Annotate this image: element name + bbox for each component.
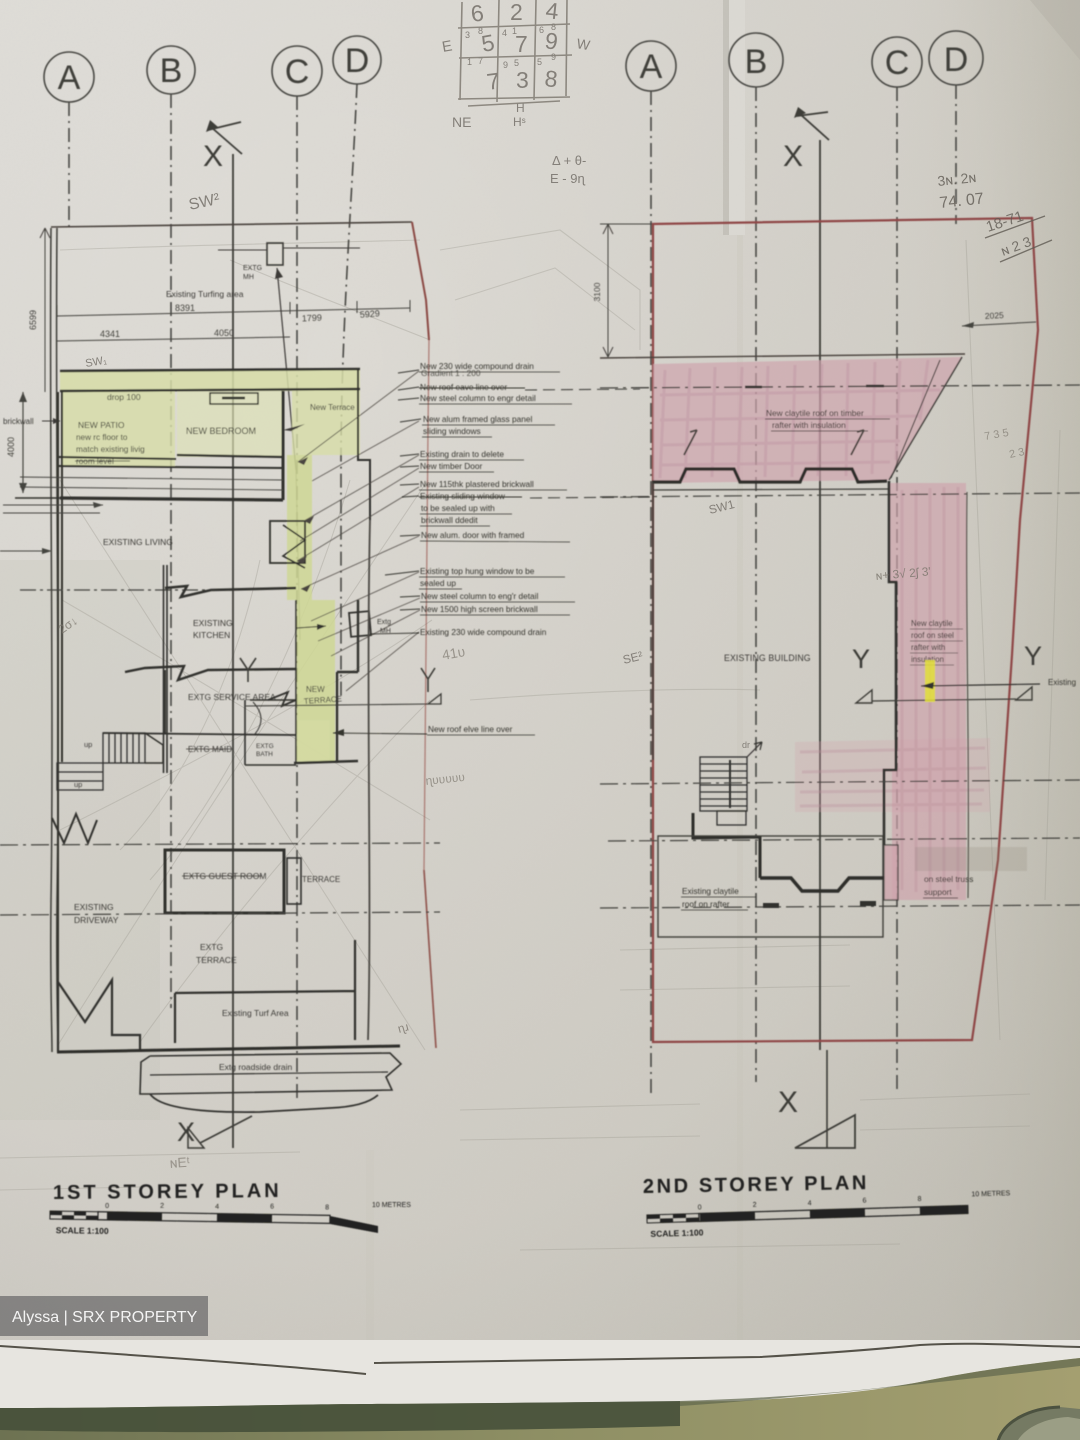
svg-text:New 115thk plastered brickwall: New 115thk plastered brickwall <box>420 479 534 489</box>
svg-text:TERRACE: TERRACE <box>302 875 340 884</box>
svg-text:sealed up: sealed up <box>420 578 456 588</box>
svg-text:Alyssa | SRX PROPERTY: Alyssa | SRX PROPERTY <box>12 1309 198 1326</box>
svg-text:D: D <box>345 42 370 80</box>
svg-text:6: 6 <box>270 1203 274 1210</box>
svg-text:4000: 4000 <box>6 437 16 457</box>
svg-text:4: 4 <box>808 1200 812 1207</box>
svg-text:NE: NE <box>452 114 471 130</box>
svg-text:up: up <box>74 780 82 789</box>
svg-text:drop 100: drop 100 <box>107 392 141 402</box>
svg-text:9: 9 <box>503 60 508 70</box>
svg-text:2ND STOREY PLAN: 2ND STOREY PLAN <box>643 1172 869 1198</box>
svg-text:Hˢ: Hˢ <box>513 115 526 129</box>
svg-text:1799: 1799 <box>302 312 323 323</box>
svg-text:C: C <box>285 53 310 91</box>
svg-text:2: 2 <box>510 0 523 25</box>
svg-text:Existing drain to delete: Existing drain to delete <box>420 449 504 459</box>
svg-text:X: X <box>177 1117 195 1147</box>
svg-text:Existing: Existing <box>1048 678 1076 687</box>
svg-text:7: 7 <box>478 56 483 66</box>
svg-text:0: 0 <box>105 1203 109 1210</box>
svg-text:EXTG: EXTG <box>256 743 274 750</box>
svg-text:Existing Turfing area: Existing Turfing area <box>166 289 244 299</box>
svg-text:EXISTING BUILDING: EXISTING BUILDING <box>724 653 811 663</box>
svg-text:New claytile: New claytile <box>911 619 953 628</box>
svg-text:NEW BEDROOM: NEW BEDROOM <box>186 426 256 436</box>
svg-text:C: C <box>885 44 910 82</box>
svg-text:3: 3 <box>516 67 529 93</box>
svg-text:EXTG: EXTG <box>200 942 223 952</box>
svg-text:New roof eave line over: New roof eave line over <box>420 382 507 392</box>
svg-text:New alum. door with framed: New alum. door with framed <box>421 530 525 540</box>
svg-text:New claytile roof on timber: New claytile roof on timber <box>766 408 864 418</box>
svg-text:Existing sliding window: Existing sliding window <box>420 491 506 501</box>
svg-text:dr: dr <box>742 740 750 750</box>
svg-text:EXTG MAID: EXTG MAID <box>188 745 232 754</box>
svg-text:rafter with insulation: rafter with insulation <box>772 420 846 430</box>
svg-text:New steel column to engr detai: New steel column to engr detail <box>420 393 536 403</box>
svg-text:Extg: Extg <box>377 619 391 626</box>
svg-text:Extg roadside drain: Extg roadside drain <box>219 1062 293 1072</box>
svg-text:EXISTING: EXISTING <box>74 902 114 912</box>
svg-text:2: 2 <box>753 1202 757 1209</box>
svg-text:2: 2 <box>160 1203 164 1210</box>
svg-text:2025: 2025 <box>985 310 1005 321</box>
svg-text:SCALE 1:100: SCALE 1:100 <box>56 1225 109 1236</box>
svg-text:support: support <box>924 887 952 897</box>
svg-text:5: 5 <box>514 58 519 68</box>
svg-text:brickwall: brickwall <box>3 417 34 426</box>
svg-text:TERRACE: TERRACE <box>196 955 237 965</box>
svg-text:6: 6 <box>539 25 544 35</box>
svg-text:new rc floor to: new rc floor to <box>76 433 128 442</box>
svg-text:on steel truss: on steel truss <box>924 874 973 884</box>
svg-text:MH: MH <box>243 274 254 281</box>
svg-text:New 1500 high screen brickwall: New 1500 high screen brickwall <box>421 604 538 614</box>
svg-text:Existing 230 wide compound dra: Existing 230 wide compound drain <box>420 627 547 637</box>
svg-text:4050: 4050 <box>214 328 234 338</box>
svg-text:New roof elve line over: New roof elve line over <box>428 724 513 734</box>
svg-text:A: A <box>640 48 663 86</box>
svg-text:6: 6 <box>863 1197 867 1204</box>
svg-text:X: X <box>203 140 223 173</box>
svg-text:Existing claytile: Existing claytile <box>682 886 739 896</box>
svg-text:1: 1 <box>467 57 472 67</box>
svg-text:EXISTING LIVING: EXISTING LIVING <box>103 537 173 547</box>
svg-text:B: B <box>160 52 183 90</box>
svg-text:8: 8 <box>551 22 556 32</box>
svg-text:4: 4 <box>215 1204 219 1211</box>
svg-text:up: up <box>84 740 92 749</box>
svg-text:to be sealed up with: to be sealed up with <box>421 503 495 513</box>
svg-text:ɴEᵗ: ɴEᵗ <box>169 1154 190 1171</box>
svg-text:0: 0 <box>698 1204 702 1211</box>
svg-text:SCALE 1:100: SCALE 1:100 <box>650 1227 703 1239</box>
svg-text:X: X <box>783 140 803 173</box>
svg-text:8: 8 <box>917 1196 921 1203</box>
svg-text:5929: 5929 <box>359 308 380 319</box>
svg-text:1ST STOREY PLAN: 1ST STOREY PLAN <box>53 1180 282 1204</box>
svg-text:NEW: NEW <box>306 685 325 694</box>
svg-text:9: 9 <box>551 52 556 62</box>
svg-text:New alum framed glass panel: New alum framed glass panel <box>423 414 532 424</box>
svg-text:A: A <box>58 59 81 97</box>
svg-text:4: 4 <box>502 28 507 38</box>
svg-text:3100: 3100 <box>592 282 602 301</box>
svg-text:8391: 8391 <box>175 303 195 313</box>
svg-text:New steel column to eng'r deta: New steel column to eng'r detail <box>421 591 538 601</box>
svg-text:sliding windows: sliding windows <box>423 426 481 436</box>
svg-text:match existing livig: match existing livig <box>76 445 145 454</box>
svg-text:New Terrace: New Terrace <box>310 403 355 412</box>
svg-text:1: 1 <box>512 26 517 36</box>
svg-text:5: 5 <box>537 57 542 67</box>
svg-text:6599: 6599 <box>28 310 38 330</box>
svg-text:EXISTING: EXISTING <box>193 618 233 628</box>
svg-text:Existing top hung window to be: Existing top hung window to be <box>420 566 535 576</box>
svg-text:DRIVEWAY: DRIVEWAY <box>74 915 119 925</box>
svg-text:roof on steel: roof on steel <box>911 631 954 640</box>
svg-text:Y: Y <box>1024 641 1042 671</box>
svg-text:KITCHEN: KITCHEN <box>193 630 230 640</box>
svg-text:D: D <box>944 41 969 79</box>
svg-text:10 METRES: 10 METRES <box>372 1202 411 1209</box>
svg-text:4341: 4341 <box>100 329 120 339</box>
svg-text:Existing Turf Area: Existing Turf Area <box>222 1008 289 1018</box>
svg-text:B: B <box>745 43 768 81</box>
svg-text:10 METRES: 10 METRES <box>971 1190 1010 1198</box>
svg-text:8: 8 <box>325 1204 329 1211</box>
svg-text:BATH: BATH <box>256 751 273 758</box>
svg-text:H: H <box>516 101 525 115</box>
svg-text:New timber Door: New timber Door <box>420 461 482 471</box>
svg-text:3: 3 <box>465 30 470 40</box>
svg-text:8: 8 <box>543 65 558 92</box>
svg-text:EXTG: EXTG <box>243 265 262 272</box>
svg-text:Δ + θ-: Δ + θ- <box>552 153 586 168</box>
svg-text:Gradient 1 : 200: Gradient 1 : 200 <box>421 368 481 378</box>
svg-text:NEW PATIO: NEW PATIO <box>78 420 125 430</box>
svg-text:rafter with: rafter with <box>911 643 945 652</box>
svg-text:brickwall ddedit: brickwall ddedit <box>421 515 478 525</box>
svg-text:Y: Y <box>852 644 870 674</box>
svg-text:X: X <box>778 1086 798 1119</box>
svg-text:E - 9ɳ: E - 9ɳ <box>550 171 585 186</box>
svg-text:room level: room level <box>76 457 114 466</box>
svg-text:8: 8 <box>478 26 483 36</box>
